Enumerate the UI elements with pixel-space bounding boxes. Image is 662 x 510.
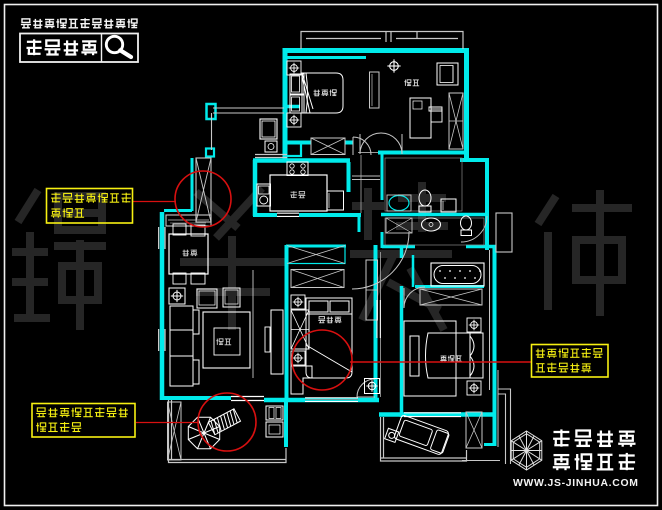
svg-text:WWW.JS-JINHUA.COM: WWW.JS-JINHUA.COM [513, 478, 639, 489]
